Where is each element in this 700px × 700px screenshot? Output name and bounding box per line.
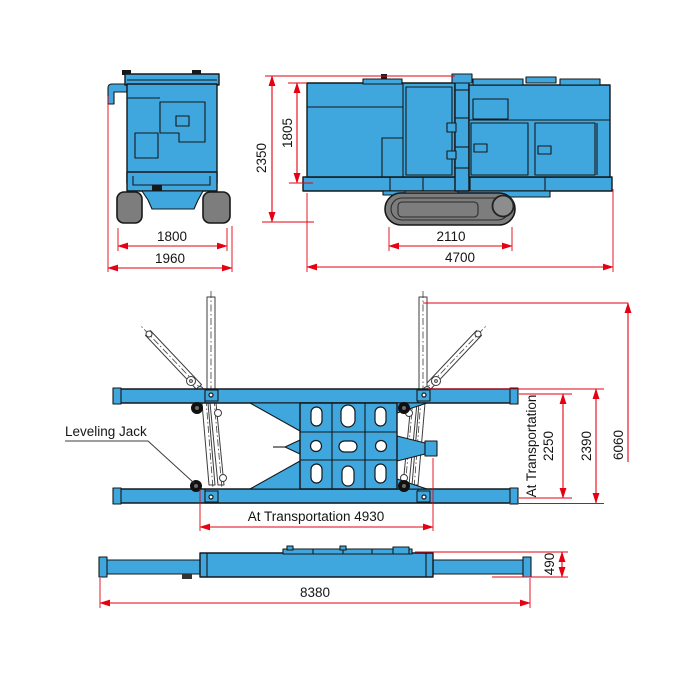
dim-transport-width-value: 2250 — [541, 431, 556, 461]
elev-main-body — [200, 553, 433, 577]
front-track-right — [203, 192, 230, 223]
side-track-sprocket — [493, 196, 514, 217]
leveling-jack-callout: Leveling Jack — [65, 424, 194, 483]
front-view: 1800 1960 — [108, 70, 232, 272]
dim-frame-width-label: 2390 — [579, 431, 594, 461]
dim-transport-length-label: At Transportation 4930 — [248, 509, 385, 524]
front-base-tray — [127, 172, 217, 191]
elev-foot — [182, 574, 192, 579]
front-panel-small — [176, 116, 189, 126]
leveling-jack-label: Leveling Jack — [65, 424, 147, 439]
dim-elev-height-label: 490 — [542, 553, 557, 576]
dim-elev-overall-length-label: 8380 — [300, 585, 330, 600]
dim-transport-width-text: At Transportation — [524, 395, 539, 498]
dim-overall-length-label: 4700 — [445, 250, 475, 265]
front-panel-lower — [135, 133, 158, 158]
front-track-left — [117, 192, 142, 223]
machine-dimension-drawing: 1800 1960 — [0, 0, 700, 700]
dimension-drawing-page: 1800 1960 — [0, 0, 700, 700]
front-undercarriage — [142, 191, 203, 209]
dim-body-height-label: 1805 — [280, 118, 295, 148]
elev-right-arm — [433, 560, 530, 574]
plan-top-beam — [115, 389, 517, 403]
dim-overall-height-label: 2350 — [254, 143, 269, 173]
plan-bottom-beam — [115, 489, 517, 503]
dim-track-length-label: 2110 — [436, 229, 465, 244]
dim-overall-width-label: 1960 — [155, 251, 185, 266]
dim-track-width-label: 1800 — [157, 229, 187, 244]
front-handle — [108, 84, 127, 104]
elevation-view: 8380 490 — [99, 546, 568, 608]
side-view: 2350 1805 2110 4700 — [254, 74, 613, 272]
dim-outrigger-span-label: 6060 — [611, 430, 626, 460]
side-mast — [455, 75, 469, 191]
plan-view: Leveling Jack 6060 2390 At Transportatio… — [65, 291, 628, 531]
elev-left-arm — [100, 560, 200, 574]
